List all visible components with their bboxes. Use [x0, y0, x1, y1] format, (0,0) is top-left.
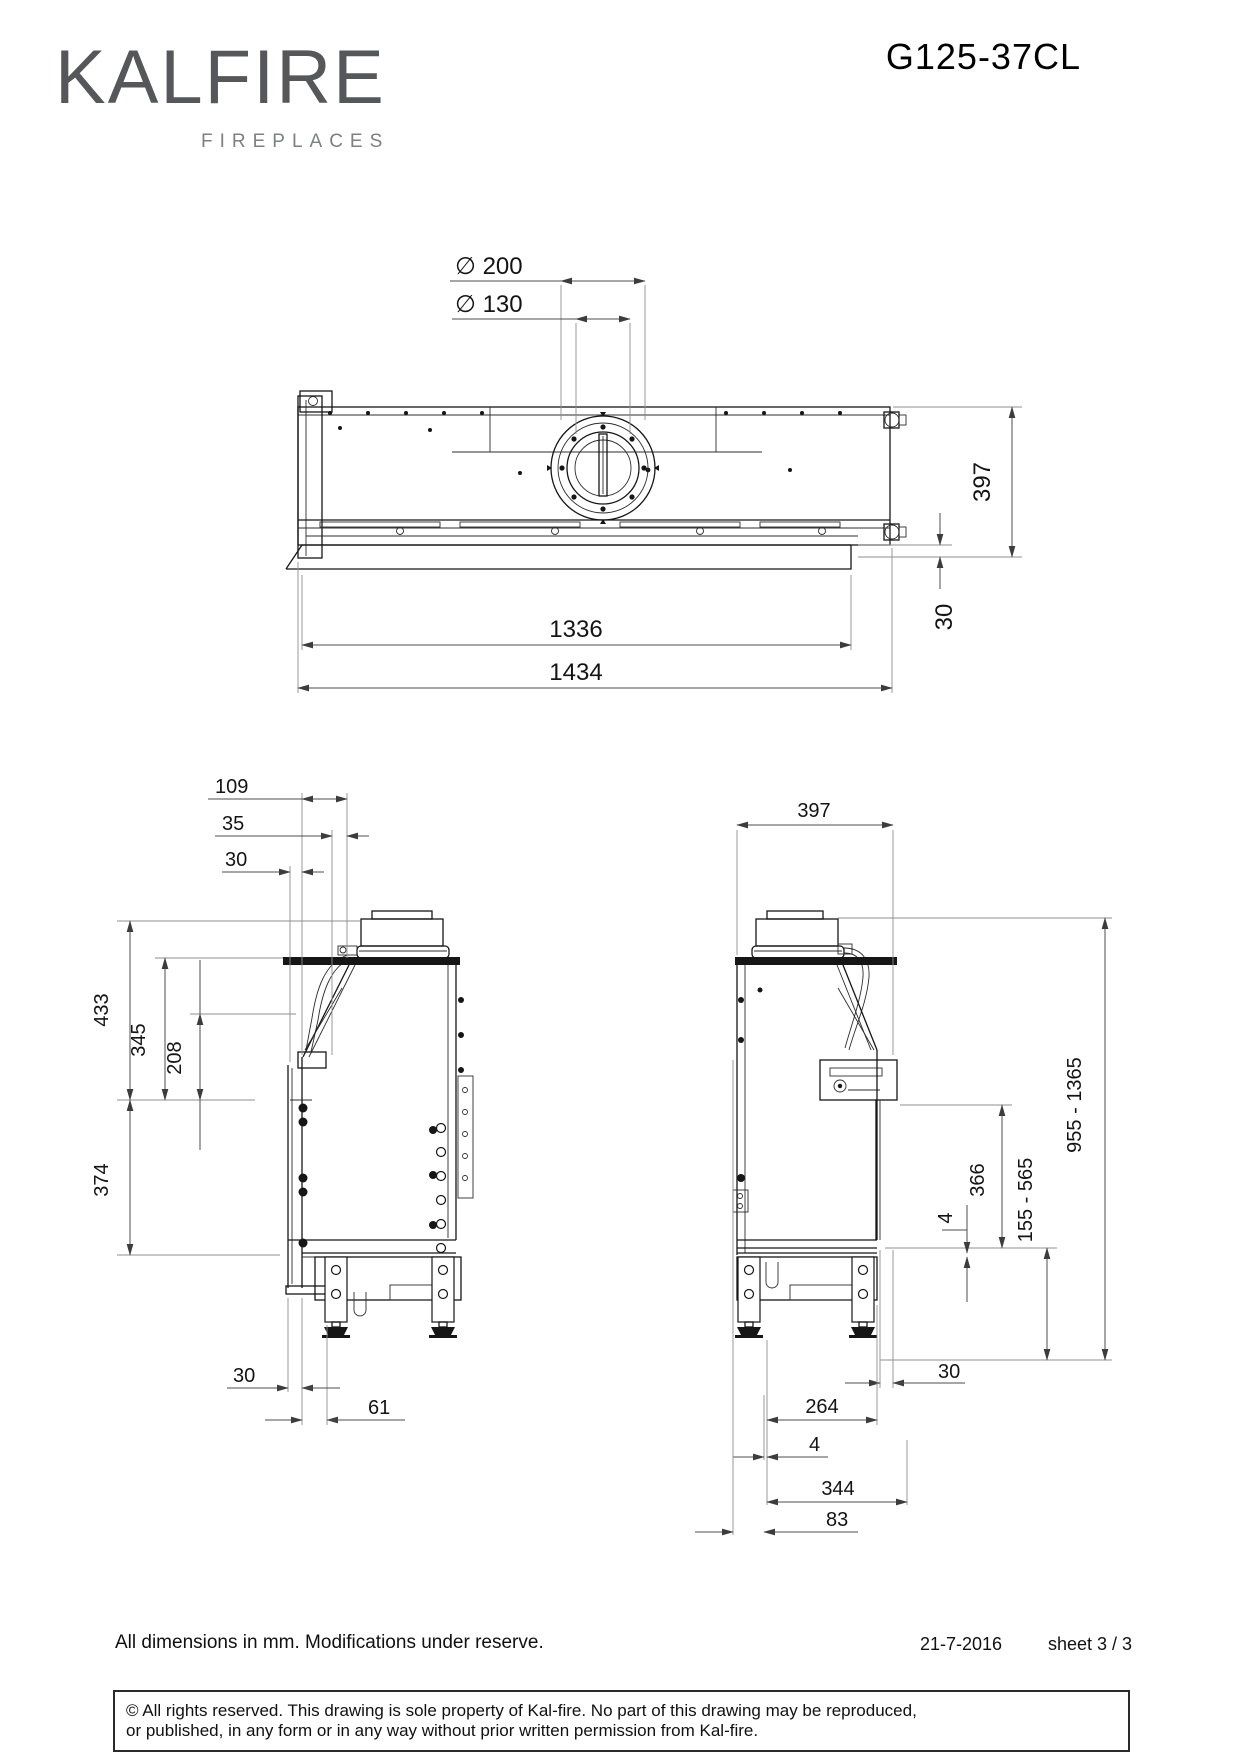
dim-4-bottom: 4 [809, 1434, 820, 1456]
copyright-line-1: © All rights reserved. This drawing is s… [126, 1701, 1117, 1721]
dim-burner-height: 155 - 565 [1015, 1158, 1037, 1243]
dim-flue-inner: ∅ 130 [455, 291, 523, 318]
copyright-box: © All rights reserved. This drawing is s… [113, 1690, 1130, 1752]
screw-dots [328, 411, 842, 475]
dim-264: 264 [805, 1396, 838, 1418]
flue-collar [547, 412, 659, 524]
dim-433: 433 [91, 993, 113, 1026]
right-view-dimensions: 397 955 - 1365 366 4 155 - 565 [695, 800, 1112, 1535]
dim-30-bottom: 30 [233, 1365, 255, 1387]
dim-30-right: 30 [938, 1361, 960, 1383]
dim-width-total: 1434 [549, 659, 602, 686]
dim-depth-397: 397 [969, 462, 996, 502]
right-view-body [733, 911, 897, 1338]
left-view-dimensions: 109 35 30 433 345 [91, 776, 405, 1425]
dim-397-right: 397 [797, 800, 830, 822]
technical-drawing-canvas: ∅ 200 ∅ 130 397 30 1336 [0, 0, 1241, 1754]
dim-374: 374 [91, 1163, 113, 1196]
top-view-body [286, 391, 906, 569]
dim-345: 345 [128, 1023, 150, 1056]
dim-width-hearth: 1336 [549, 616, 602, 643]
adjustable-feet [735, 1322, 877, 1338]
dim-4-gap: 4 [935, 1212, 957, 1223]
dim-109: 109 [215, 776, 248, 798]
drawing-sheet: KALFIRE FIREPLACES G125-37CL [0, 0, 1241, 1754]
dim-total-height: 955 - 1365 [1064, 1057, 1086, 1153]
dim-flue-outer: ∅ 200 [455, 253, 523, 280]
dim-front-lip-30: 30 [931, 604, 958, 631]
dim-30-top: 30 [225, 849, 247, 871]
top-view-dimensions: ∅ 200 ∅ 130 397 30 1336 [298, 253, 1022, 693]
dim-208: 208 [164, 1041, 186, 1074]
top-view: ∅ 200 ∅ 130 397 30 1336 [286, 253, 1022, 693]
dim-61: 61 [368, 1397, 390, 1419]
dim-83: 83 [826, 1509, 848, 1531]
dim-366: 366 [967, 1163, 989, 1196]
left-side-view: 109 35 30 433 345 [91, 776, 473, 1425]
copyright-line-2: or published, in any form or in any way … [126, 1721, 1117, 1741]
adjustable-feet [322, 1322, 457, 1338]
dim-35: 35 [222, 813, 244, 835]
right-side-view: 397 955 - 1365 366 4 155 - 565 [695, 800, 1112, 1535]
drawing-date: 21-7-2016 [920, 1634, 1002, 1655]
sheet-number: sheet 3 / 3 [1048, 1634, 1132, 1655]
dim-344: 344 [821, 1478, 854, 1500]
left-view-body [283, 911, 473, 1338]
dimensions-note: All dimensions in mm. Modifications unde… [115, 1632, 544, 1654]
hearth-tray [286, 520, 890, 569]
